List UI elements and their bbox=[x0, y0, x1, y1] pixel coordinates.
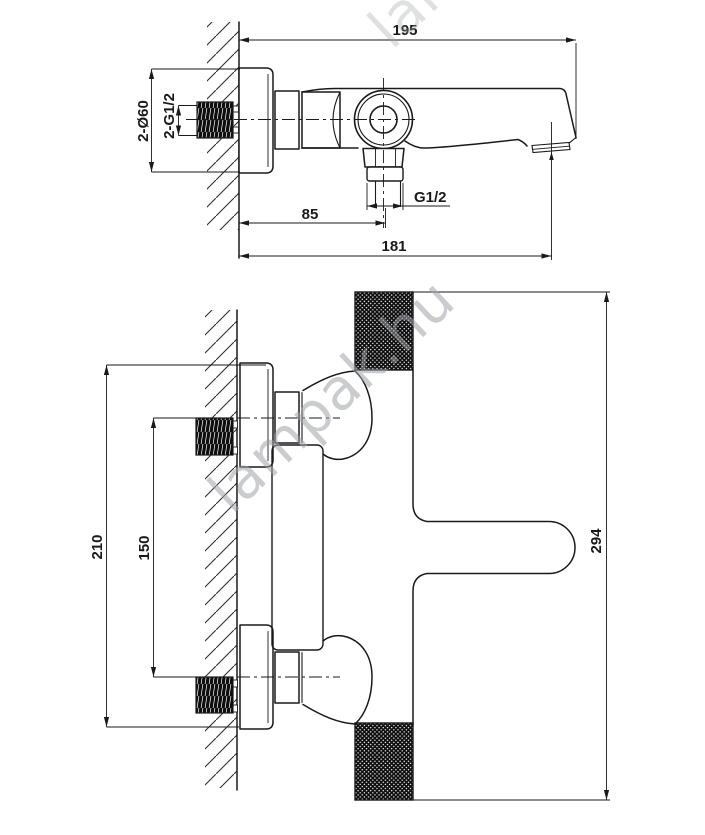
thread-tab bbox=[233, 106, 239, 112]
inlet-thread-nipple-bottom bbox=[196, 677, 233, 713]
inlet-bulb-bottom bbox=[303, 705, 355, 725]
thread-tab bbox=[233, 127, 239, 133]
dim-label: 150 bbox=[136, 535, 153, 560]
thread-tab bbox=[233, 421, 238, 428]
connection-nut-bottom bbox=[275, 652, 299, 703]
dim-label: 294 bbox=[588, 528, 605, 554]
thread-tab bbox=[233, 680, 238, 687]
hose-cap-ring bbox=[367, 167, 403, 181]
body-cylinder bbox=[302, 92, 340, 148]
knurled-knob-bottom bbox=[355, 723, 413, 800]
dim-label: 85 bbox=[302, 206, 319, 223]
wall-hatch bbox=[205, 310, 237, 788]
dim-inlet-thread: 2-G1/2 bbox=[161, 93, 197, 139]
faucet-dimension-drawing: 195 2-Ø60 2-G1/2 85 181 bbox=[0, 0, 705, 835]
connection-nut bbox=[275, 91, 299, 149]
side-view: 195 2-Ø60 2-G1/2 85 181 bbox=[135, 22, 577, 260]
dim-label: G1/2 bbox=[414, 189, 447, 206]
body-fill bbox=[302, 89, 577, 149]
dim-hose-thread: G1/2 bbox=[367, 183, 450, 210]
dim-label: 2-G1/2 bbox=[161, 93, 178, 139]
dim-label: 181 bbox=[381, 238, 406, 255]
inlet-thread-nipple bbox=[197, 102, 233, 138]
watermark-text-partial: lampak.hu bbox=[356, 0, 628, 61]
technical-drawing-page: 195 2-Ø60 2-G1/2 85 181 bbox=[0, 0, 705, 835]
dim-label: 2-Ø60 bbox=[135, 100, 152, 142]
dim-inlet-distance: 150 bbox=[136, 418, 200, 677]
thread-tab bbox=[233, 705, 238, 712]
dim-label: 210 bbox=[89, 534, 106, 559]
dim-spout-offset: 85 bbox=[239, 206, 386, 228]
outlet-arrow bbox=[549, 152, 554, 160]
hose-pipe bbox=[376, 181, 401, 207]
